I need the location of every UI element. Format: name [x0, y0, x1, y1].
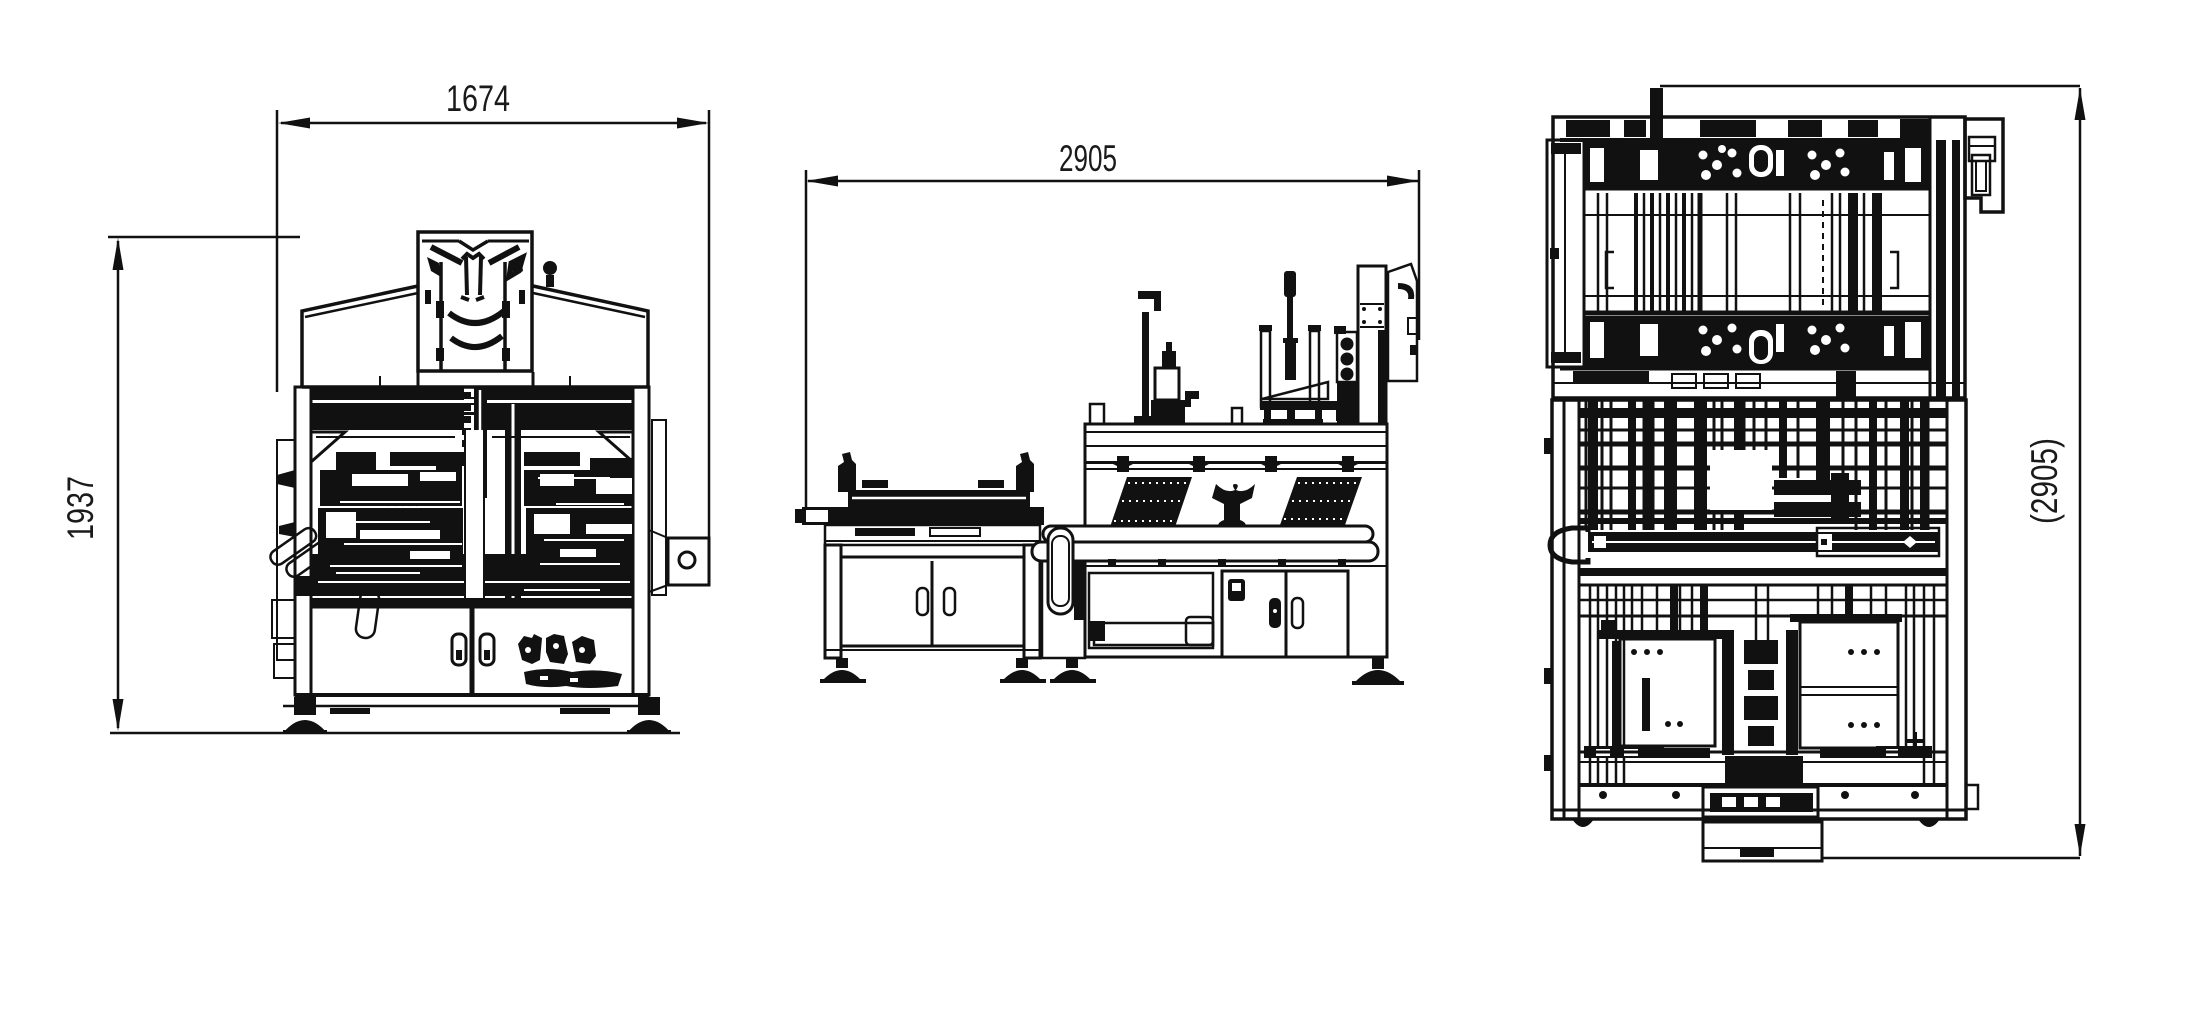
svg-text:2905: 2905	[1059, 138, 1117, 179]
svg-text:1937: 1937	[60, 476, 101, 540]
svg-text:1674: 1674	[446, 78, 510, 119]
svg-text:(2905): (2905)	[2024, 438, 2065, 524]
